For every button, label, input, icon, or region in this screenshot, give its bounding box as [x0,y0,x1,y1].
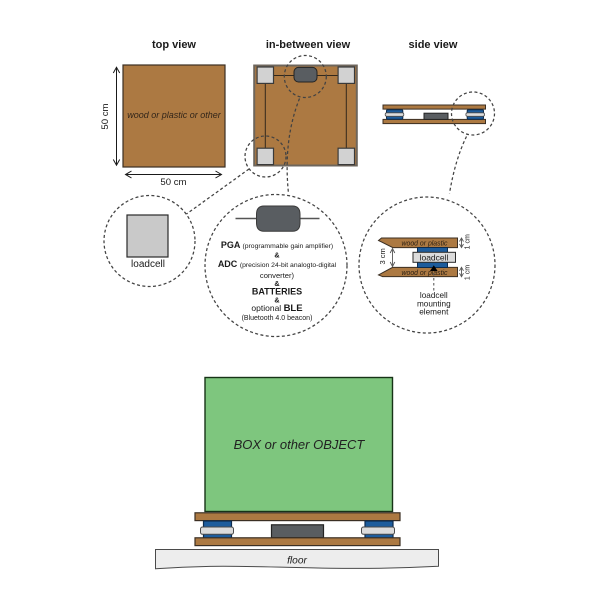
svg-text:50 cm: 50 cm [160,177,186,188]
svg-text:3 cm: 3 cm [378,248,387,264]
svg-text:1 cm: 1 cm [465,234,472,249]
svg-text:(Bluetooth 4.0 beacon): (Bluetooth 4.0 beacon) [242,315,313,322]
svg-text:element: element [419,308,449,317]
svg-text:&: & [274,251,279,260]
svg-text:optional BLE: optional BLE [251,303,302,314]
svg-text:wood or plastic: wood or plastic [402,241,449,248]
svg-text:wood or plastic: wood or plastic [402,270,449,277]
svg-text:loadcell: loadcell [420,252,449,262]
svg-text:top view: top view [152,39,196,51]
svg-text:floor: floor [287,556,307,567]
svg-text:1 cm: 1 cm [465,265,472,280]
svg-text:side view: side view [409,39,458,51]
svg-text:50 cm: 50 cm [100,103,111,129]
svg-text:wood or plastic or other: wood or plastic or other [127,110,222,120]
svg-text:loadcell: loadcell [131,259,165,270]
svg-text:in-between view: in-between view [266,39,351,51]
svg-text:BOX or other OBJECT: BOX or other OBJECT [234,437,366,452]
